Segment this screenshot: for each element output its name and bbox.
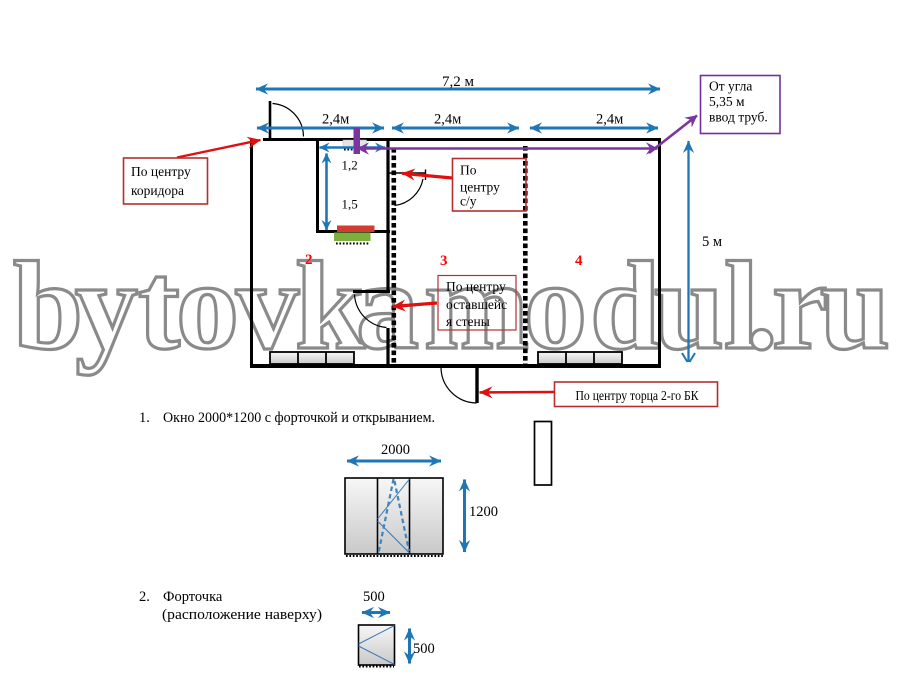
svg-text:5,35 м: 5,35 м <box>709 94 745 109</box>
svg-text:2000: 2000 <box>381 442 410 458</box>
svg-text:2: 2 <box>305 252 313 268</box>
svg-text:По центру: По центру <box>446 279 506 294</box>
svg-text:500: 500 <box>413 641 435 657</box>
svg-text:По: По <box>460 163 477 178</box>
svg-text:1,2: 1,2 <box>342 158 358 173</box>
svg-text:500: 500 <box>363 589 385 605</box>
svg-text:(расположение наверху): (расположение наверху) <box>162 607 322 623</box>
svg-text:Форточка: Форточка <box>163 589 223 605</box>
svg-text:2,4м: 2,4м <box>322 112 349 128</box>
svg-text:3: 3 <box>440 253 448 269</box>
svg-text:1.: 1. <box>139 410 150 426</box>
svg-text:Окно 2000*1200 с форточкой и о: Окно 2000*1200 с форточкой и открыванием… <box>163 410 435 426</box>
svg-text:оставшейс: оставшейс <box>446 297 507 312</box>
svg-text:с/у: с/у <box>460 194 477 209</box>
svg-text:По центру торца 2-го БК: По центру торца 2-го БК <box>576 388 700 403</box>
svg-text:2,4м: 2,4м <box>596 112 623 128</box>
svg-text:2,4м: 2,4м <box>434 112 461 128</box>
svg-text:7,2 м: 7,2 м <box>442 74 475 90</box>
svg-text:5 м: 5 м <box>702 234 722 250</box>
svg-text:От угла: От угла <box>709 79 752 94</box>
svg-text:1,5: 1,5 <box>342 197 358 212</box>
svg-text:коридора: коридора <box>131 183 184 198</box>
svg-text:1200: 1200 <box>469 504 498 520</box>
svg-text:центру: центру <box>460 180 500 195</box>
svg-text:я стены: я стены <box>446 314 490 329</box>
svg-text:По центру: По центру <box>131 164 191 179</box>
svg-text:ввод труб.: ввод труб. <box>709 110 768 125</box>
svg-text:4: 4 <box>575 253 583 269</box>
svg-text:2.: 2. <box>139 589 150 605</box>
